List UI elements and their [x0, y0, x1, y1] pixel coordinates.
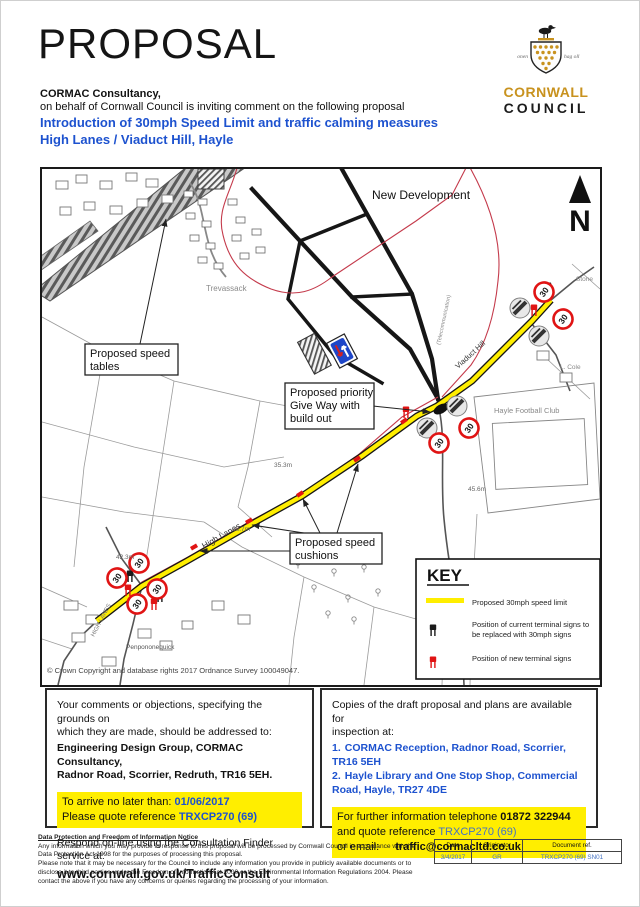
deadline-highlight: To arrive no later than: 01/06/2017 Plea…	[57, 792, 302, 828]
svg-text:build out: build out	[290, 413, 332, 425]
football-club-grounds	[474, 383, 600, 513]
notice-paragraph-2: Please note that it may be necessary for…	[38, 860, 430, 886]
deadline-date: 01/06/2017	[175, 796, 230, 808]
motto-left: onen	[517, 54, 528, 60]
document-ref-table: Date Originator Document ref. 3/4/2017 G…	[434, 839, 622, 864]
respond-address: Engineering Design Group, CORMAC Consult…	[57, 742, 302, 783]
orchard-trees	[296, 561, 380, 625]
inspection-location-2: 2.Hayle Library and One Stop Shop, Comme…	[332, 770, 586, 797]
table-header-date: Date	[435, 840, 472, 852]
motto-right: hag oll	[564, 54, 580, 60]
table-value-docref: TRXCP270 (69) SN01	[523, 852, 622, 864]
map-key: KEY Proposed 30mph speed limit Position …	[416, 559, 600, 679]
consultancy-name: CORMAC Consultancy,	[40, 88, 161, 100]
proposal-title-line1: Introduction of 30mph Speed Limit and tr…	[40, 115, 438, 130]
table-value-originator: GR	[472, 852, 523, 864]
stone-label: Stone	[576, 276, 593, 283]
council-crest-icon: onen hag oll	[498, 22, 594, 80]
logo-council-text: COUNCIL	[490, 100, 602, 116]
priority-sign-icon	[327, 334, 358, 368]
proposal-title-line2: High Lanes / Viaduct Hill, Hayle	[40, 132, 233, 147]
proposal-document: PROPOSAL onen hag oll CORNWALL COUNCIL C…	[0, 0, 640, 907]
respond-intro: Your comments or objections, specifying …	[57, 699, 302, 740]
reference-code-light: TRXCP270 (69)	[438, 826, 516, 838]
proposal-map: 30 30 30 30 30 30 30 30 New Development …	[42, 169, 600, 685]
intro-line: on behalf of Cornwall Council is invitin…	[40, 101, 404, 113]
cornwall-council-logo: onen hag oll CORNWALL COUNCIL	[490, 22, 602, 116]
proposal-map-frame: 30 30 30 30 30 30 30 30 New Development …	[40, 167, 602, 687]
spot-height-3: 38.7m	[232, 526, 250, 533]
respond-box: Your comments or objections, specifying …	[45, 688, 314, 828]
copies-intro: Copies of the draft proposal and plans a…	[332, 699, 586, 740]
notice-paragraph-1: Any information which you may provide in…	[38, 843, 430, 860]
key-item2-line2: be replaced with 30mph signs	[472, 630, 571, 639]
inspection-location-1: 1.CORMAC Reception, Radnor Road, Scorrie…	[332, 742, 586, 769]
svg-text:Proposed speed: Proposed speed	[90, 348, 170, 360]
key-item3-label: Position of new terminal signs	[472, 654, 571, 663]
football-club-label: Hayle Football Club	[494, 406, 559, 415]
logo-cornwall-text: CORNWALL	[490, 85, 602, 100]
svg-text:cushions: cushions	[295, 550, 339, 562]
table-header-originator: Originator	[472, 840, 523, 852]
spot-height-1: 35.3m	[274, 462, 292, 469]
data-protection-notice: Data Protection and Freedom of Informati…	[38, 834, 430, 886]
notice-title: Data Protection and Freedom of Informati…	[38, 834, 430, 843]
page-title: PROPOSAL	[38, 20, 277, 68]
north-arrow-icon: N	[569, 175, 591, 238]
svg-text:Proposed priority: Proposed priority	[290, 387, 374, 399]
key-item1-label: Proposed 30mph speed limit	[472, 598, 568, 607]
new-development-label: New Development	[372, 188, 471, 202]
map-copyright: © Crown Copyright and database rights 20…	[47, 666, 299, 675]
svg-text:Give Way with: Give Way with	[290, 400, 360, 412]
table-value-date: 3/4/2017	[435, 852, 472, 864]
settlement-label: Penpononequick	[126, 644, 175, 651]
build-out-building	[298, 333, 332, 374]
copies-box: Copies of the draft proposal and plans a…	[320, 688, 598, 828]
telecom-label: (Telecommunication)	[436, 294, 452, 345]
spot-height-2: 45.6m	[468, 486, 486, 493]
key-title: KEY	[427, 566, 463, 585]
svg-text:Proposed speed: Proposed speed	[295, 537, 375, 549]
key-yellow-swatch	[426, 598, 464, 603]
l-cole-label: L. Cole	[560, 364, 581, 371]
north-label: N	[569, 205, 591, 238]
table-header-docref: Document ref.	[523, 840, 622, 852]
phone-number: 01872 322944	[500, 811, 570, 823]
annotation-speed-cushions: Proposed speed cushions	[200, 464, 382, 564]
spot-height-4: 42.3m	[116, 554, 134, 561]
svg-text:tables: tables	[90, 361, 120, 373]
trevassack-label: Trevassack	[206, 284, 248, 293]
reference-code: TRXCP270 (69)	[179, 811, 257, 823]
key-item2-line1: Position of current terminal signs to	[472, 620, 589, 629]
